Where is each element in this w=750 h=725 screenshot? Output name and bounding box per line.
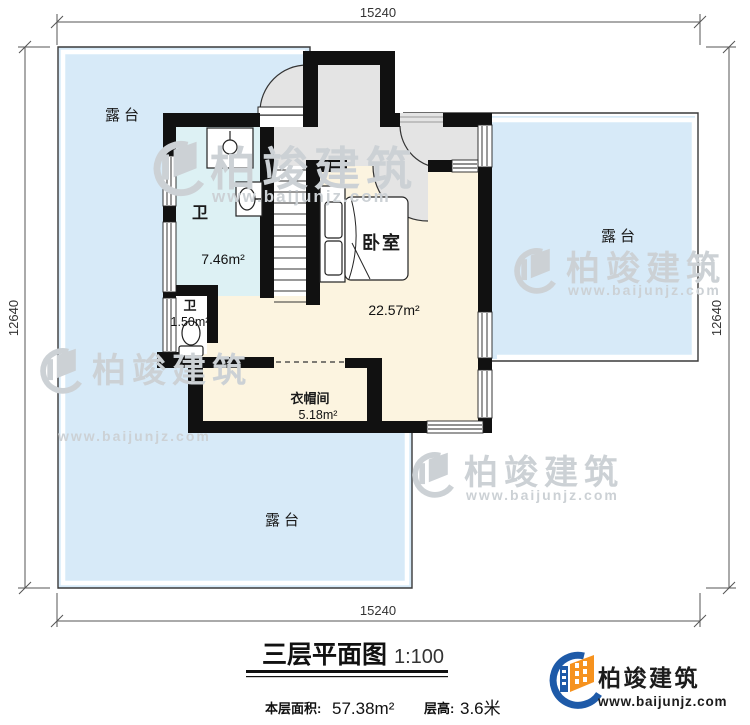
cloakroom-area: 5.18m² xyxy=(299,408,338,422)
title-block: 三层平面图 1:100 本层面积: 57.38m² 层高: 3.6米 xyxy=(246,641,501,718)
dim-bottom: 15240 xyxy=(360,603,396,618)
dim-top: 15240 xyxy=(360,5,396,20)
terrace-door-leaf xyxy=(258,107,307,115)
wc-label: 卫 xyxy=(183,298,196,313)
bedroom-label: 卧室 xyxy=(362,232,402,253)
dim-right: 12640 xyxy=(709,300,724,336)
cloakroom-label: 衣帽间 xyxy=(290,391,329,406)
floor-area-value: 57.38m² xyxy=(332,699,395,718)
watermark-url: www.baijunjz.com xyxy=(465,487,619,503)
company-name: 柏竣建筑 xyxy=(598,665,700,691)
floor-area-label: 本层面积: xyxy=(265,701,321,716)
terrace-top-label: 露台 xyxy=(105,107,143,124)
floor-height-label: 层高: xyxy=(424,701,454,716)
bathroom-area: 7.46m² xyxy=(201,251,245,267)
floor-height-value: 3.6米 xyxy=(460,699,501,718)
terrace-right-label: 露台 xyxy=(601,228,639,245)
watermark-url: www.baijunjz.com xyxy=(57,428,211,444)
company-logo: 柏竣建筑 www.baijunjz.com xyxy=(553,655,727,709)
watermark-company: 柏竣建筑 xyxy=(92,351,252,390)
page-title: 三层平面图 xyxy=(262,641,387,669)
watermark-url: www.baijunjz.com xyxy=(211,187,391,206)
scale-label: 1:100 xyxy=(394,646,444,668)
floor-plan-drawing: 柏竣建筑 www.baijunjz.com 柏竣建筑 www.baijunjz.… xyxy=(0,0,750,725)
terrace-bottom-label: 露台 xyxy=(265,512,303,529)
dim-left: 12640 xyxy=(6,300,21,336)
bedroom-area: 22.57m² xyxy=(368,302,420,318)
company-website: www.baijunjz.com xyxy=(597,694,727,709)
floor-plan-page: 柏竣建筑 www.baijunjz.com 柏竣建筑 www.baijunjz.… xyxy=(0,0,750,725)
wc-area: 1.50m² xyxy=(171,315,210,329)
bathroom-label: 卫 xyxy=(192,205,208,222)
watermark-url: www.baijunjz.com xyxy=(567,282,721,298)
company-logo-icon xyxy=(553,655,599,705)
